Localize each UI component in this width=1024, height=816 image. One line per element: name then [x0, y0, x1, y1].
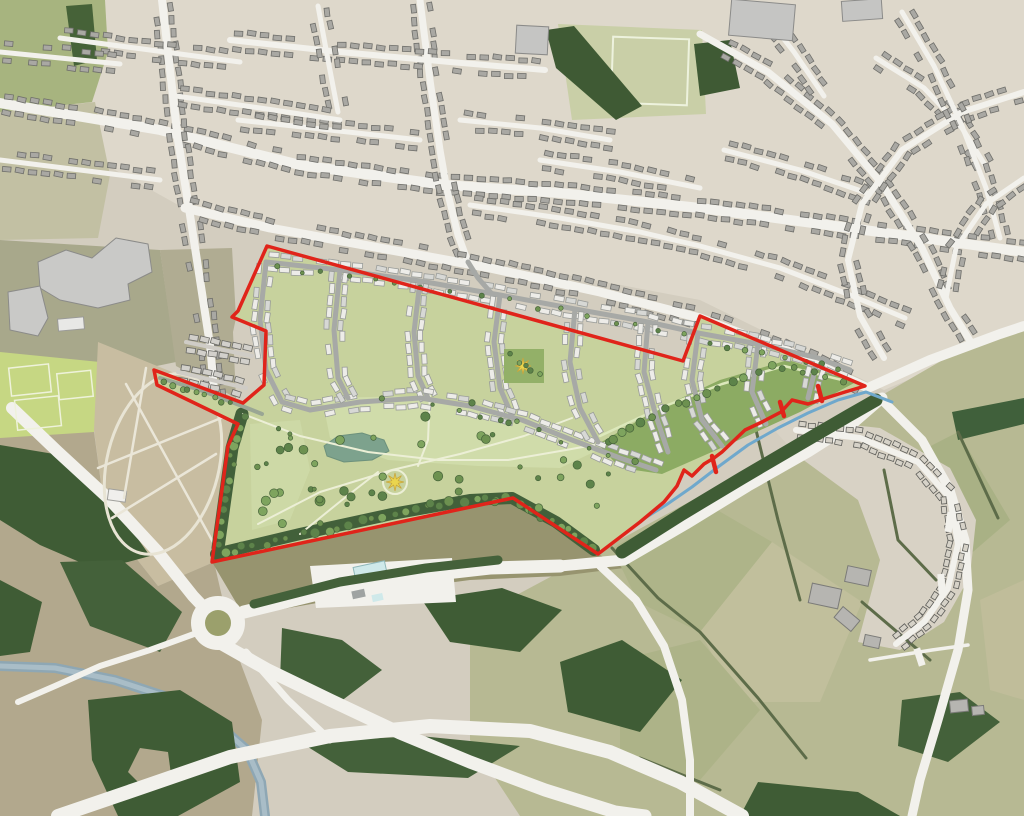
house [406, 306, 412, 317]
house [451, 182, 458, 191]
house [271, 51, 280, 57]
house [218, 152, 227, 158]
tree-icon [457, 408, 461, 412]
house [395, 143, 404, 149]
tree-icon [587, 446, 591, 450]
house [281, 253, 292, 259]
house [159, 69, 165, 78]
house [338, 320, 344, 330]
tree-icon [740, 374, 748, 382]
house [955, 270, 961, 279]
house [408, 367, 413, 377]
house [267, 335, 272, 345]
house [723, 201, 732, 207]
house [171, 159, 177, 168]
house [853, 442, 861, 448]
house [431, 159, 437, 168]
house [700, 348, 706, 359]
tree-icon [633, 322, 637, 326]
house [164, 107, 170, 116]
tree-icon [538, 372, 543, 377]
tree-icon [418, 441, 425, 448]
house [577, 211, 586, 218]
tree-icon [557, 474, 564, 481]
tree-icon [378, 492, 387, 501]
house [371, 125, 380, 130]
house [229, 110, 238, 116]
house [348, 407, 359, 413]
house [90, 32, 99, 38]
tree-icon [560, 457, 567, 464]
house [219, 93, 228, 98]
tree-icon [421, 412, 430, 421]
tree-icon [371, 435, 376, 440]
house [288, 238, 297, 244]
house [539, 204, 548, 210]
house [269, 252, 279, 258]
building-top-2 [729, 0, 796, 41]
house [532, 58, 541, 64]
tree-icon [161, 379, 167, 385]
house [163, 95, 168, 104]
house [574, 227, 583, 233]
house [408, 403, 419, 409]
tree-icon [606, 453, 610, 457]
house [341, 297, 347, 307]
house [295, 170, 304, 176]
house [565, 208, 574, 214]
tree-icon [586, 480, 594, 488]
house [657, 209, 666, 215]
house [17, 152, 26, 158]
house [53, 118, 62, 124]
house [423, 188, 432, 194]
house [64, 28, 73, 34]
house [349, 58, 358, 64]
house [69, 105, 78, 111]
tree-icon [675, 400, 682, 407]
tree-icon [482, 435, 491, 444]
tree-icon [478, 415, 483, 420]
house [283, 100, 292, 106]
house [310, 156, 319, 162]
house [361, 163, 370, 169]
house [381, 237, 390, 243]
house [400, 168, 409, 174]
house [671, 194, 680, 200]
house [142, 38, 151, 44]
house [422, 366, 427, 376]
tree-icon [517, 361, 522, 366]
school-outbuilding [58, 317, 85, 331]
tree-icon [378, 514, 386, 522]
tree-icon [649, 414, 656, 421]
house [327, 368, 334, 379]
house [107, 163, 116, 169]
house [334, 59, 340, 68]
house [521, 264, 530, 270]
house [478, 71, 487, 77]
house [746, 357, 752, 367]
house [559, 274, 568, 281]
house [247, 30, 256, 36]
house [408, 145, 417, 151]
house [92, 178, 101, 184]
house [477, 177, 486, 182]
house [487, 357, 493, 368]
house [574, 347, 580, 358]
tree-icon [261, 496, 270, 505]
house [307, 122, 316, 128]
tree-icon [436, 502, 443, 509]
house [622, 163, 631, 169]
house [489, 296, 495, 307]
house [375, 61, 384, 67]
house [206, 91, 215, 97]
house [281, 116, 290, 122]
house [77, 30, 86, 36]
house [104, 126, 113, 133]
house [1020, 240, 1024, 246]
house [284, 52, 293, 58]
house [800, 212, 809, 218]
house [799, 421, 807, 427]
house [506, 55, 515, 61]
sun-symbol-2 [386, 473, 404, 491]
house [631, 207, 640, 213]
house [258, 97, 267, 103]
house [490, 177, 499, 183]
house [311, 399, 322, 405]
house [555, 182, 564, 188]
tree-icon [822, 374, 827, 379]
house [326, 307, 332, 317]
house [427, 2, 434, 11]
house [958, 553, 964, 561]
house [30, 152, 39, 158]
house [297, 154, 306, 159]
house [169, 16, 174, 25]
house [485, 214, 494, 220]
house [211, 311, 217, 320]
house [528, 196, 537, 201]
house [459, 279, 470, 285]
house [338, 42, 347, 47]
house [689, 249, 698, 255]
tree-icon [221, 548, 230, 557]
tree-icon [594, 503, 599, 508]
house [505, 277, 514, 283]
house [133, 167, 142, 173]
house [146, 167, 155, 173]
tree-icon [379, 396, 384, 401]
house [648, 294, 657, 300]
house [498, 333, 504, 343]
house [219, 47, 228, 54]
house [456, 207, 462, 216]
house [424, 274, 434, 280]
house [464, 110, 473, 116]
tree-icon [448, 289, 452, 293]
house [396, 405, 406, 410]
house [517, 73, 526, 78]
house [286, 36, 295, 42]
house [428, 49, 437, 55]
house [348, 162, 357, 169]
house [232, 92, 241, 98]
house [28, 60, 37, 66]
house [618, 205, 627, 211]
tree-icon [369, 490, 375, 496]
house [204, 62, 213, 68]
house [452, 68, 461, 74]
house [516, 179, 525, 185]
house [393, 239, 402, 245]
tree-icon [537, 427, 542, 432]
house [568, 122, 577, 128]
house [489, 369, 495, 380]
house [191, 104, 200, 110]
house [260, 32, 269, 38]
house [264, 312, 270, 323]
tree-icon [237, 542, 245, 550]
house [410, 129, 419, 135]
house [251, 311, 257, 322]
house [43, 45, 52, 50]
house [328, 271, 334, 281]
house [181, 132, 187, 141]
house [167, 2, 173, 11]
tree-icon [528, 368, 534, 374]
house [4, 41, 13, 47]
tree-icon [276, 426, 280, 430]
house [599, 318, 609, 324]
tree-icon [708, 341, 712, 345]
house [489, 381, 495, 392]
house [953, 283, 959, 292]
house [811, 228, 820, 234]
house [186, 347, 196, 354]
house [389, 45, 398, 51]
house [82, 49, 91, 55]
house [106, 68, 115, 74]
house [129, 37, 138, 43]
house [607, 188, 616, 194]
house [253, 128, 262, 134]
tree-icon [606, 472, 610, 476]
house [401, 64, 410, 70]
tree-icon [460, 497, 470, 507]
house [645, 191, 654, 197]
house [417, 69, 422, 78]
house [270, 98, 279, 104]
house [443, 131, 449, 140]
house [42, 61, 51, 66]
house [562, 225, 571, 231]
tree-icon [433, 471, 442, 480]
tree-icon [317, 521, 323, 527]
house [340, 331, 345, 341]
house [542, 119, 551, 125]
tree-icon [585, 314, 590, 319]
house [180, 86, 189, 92]
house [565, 137, 574, 144]
tree-icon [318, 269, 323, 274]
house [384, 403, 394, 408]
house [55, 103, 64, 109]
tree-icon [811, 369, 817, 375]
house [594, 187, 603, 193]
tree-icon [402, 508, 410, 516]
house [633, 189, 642, 195]
house [943, 559, 949, 567]
sports-pitches-left [0, 352, 100, 444]
house [224, 375, 234, 382]
house [152, 57, 161, 63]
house [294, 119, 303, 125]
house [307, 172, 316, 178]
house [342, 272, 348, 283]
house [414, 63, 423, 69]
house [506, 288, 517, 295]
house [154, 30, 160, 39]
tree-icon [170, 383, 176, 389]
house [480, 272, 489, 279]
house [463, 191, 472, 197]
house [362, 277, 372, 283]
house [387, 167, 396, 173]
house [738, 159, 747, 166]
house [513, 201, 522, 207]
house [701, 324, 712, 330]
house [472, 210, 481, 216]
house [744, 381, 750, 391]
house [273, 35, 282, 41]
house [167, 42, 176, 48]
tree-icon [742, 347, 748, 353]
house [785, 225, 794, 232]
house [464, 175, 473, 180]
house [429, 264, 438, 270]
house [841, 235, 847, 244]
house [991, 253, 1000, 259]
tree-icon [626, 424, 634, 432]
tree-icon [715, 386, 720, 391]
house [516, 115, 525, 121]
tree-icon [455, 475, 463, 483]
tree-icon [231, 462, 236, 467]
tree-icon [836, 367, 841, 372]
tree-icon [194, 390, 199, 395]
house [422, 354, 427, 364]
house [331, 137, 340, 143]
house [203, 260, 209, 269]
layby-2 [937, 574, 945, 594]
tree-icon [444, 497, 454, 507]
house [323, 157, 332, 163]
house [603, 145, 612, 151]
tree-icon [369, 516, 375, 522]
house [503, 178, 512, 183]
house [193, 87, 202, 93]
tree-icon [242, 413, 249, 420]
house [189, 334, 199, 341]
house [579, 200, 588, 206]
house [95, 161, 104, 167]
house [725, 156, 734, 163]
house [388, 61, 397, 67]
house [577, 336, 582, 346]
house [217, 64, 226, 70]
house [692, 235, 701, 241]
house [493, 54, 502, 60]
house [421, 404, 432, 411]
house [232, 46, 241, 52]
house [144, 183, 153, 189]
house [316, 49, 322, 58]
tree-icon [249, 543, 255, 549]
tree-icon [334, 526, 340, 532]
tree-icon [479, 293, 484, 298]
farm2-building-2 [972, 705, 985, 715]
house [569, 290, 578, 296]
house [208, 351, 218, 358]
house [80, 66, 89, 72]
house [245, 96, 254, 102]
house [955, 504, 961, 512]
house [418, 330, 423, 340]
house [407, 355, 413, 365]
house [319, 124, 328, 130]
house [590, 212, 599, 219]
house [411, 4, 417, 13]
tree-icon [218, 400, 224, 406]
house [327, 295, 333, 305]
house [594, 174, 603, 180]
house [169, 146, 175, 155]
house [981, 235, 990, 241]
house [178, 102, 187, 108]
tree-icon [426, 500, 434, 508]
house [500, 198, 509, 204]
house [488, 128, 497, 134]
house [581, 184, 590, 190]
house [625, 307, 636, 314]
house [43, 154, 52, 160]
building-top-3 [841, 0, 882, 21]
tree-icon [312, 461, 318, 467]
house [839, 248, 846, 257]
house [383, 391, 393, 397]
house [330, 228, 339, 234]
tree-icon [184, 387, 190, 393]
house [566, 297, 577, 303]
tree-icon [412, 505, 420, 513]
tree-icon [455, 488, 462, 495]
house [411, 17, 417, 26]
house [314, 241, 323, 248]
house [292, 132, 301, 138]
tree-icon [344, 521, 353, 530]
house [273, 147, 282, 153]
house [562, 334, 567, 344]
house [515, 196, 524, 201]
tree-icon [498, 418, 503, 423]
house [405, 331, 411, 342]
tree-icon [703, 389, 711, 397]
house [415, 49, 424, 54]
house [458, 396, 469, 402]
